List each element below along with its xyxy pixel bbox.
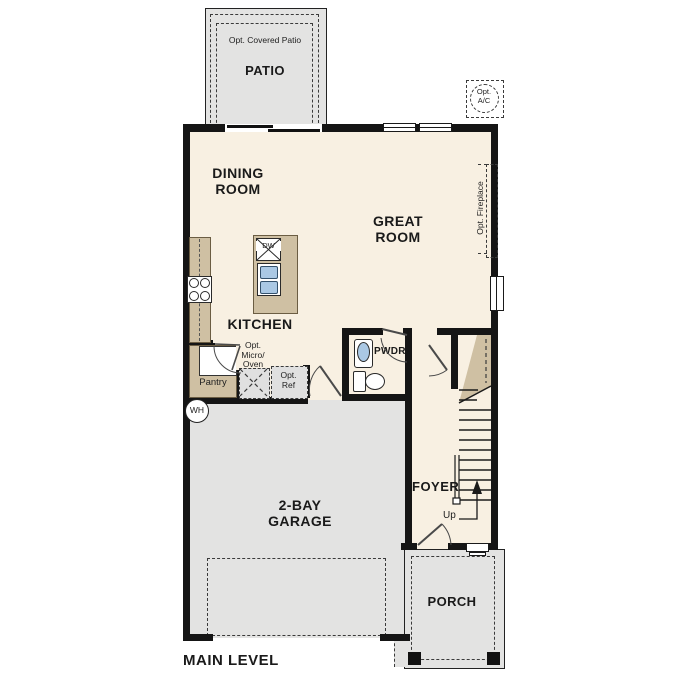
opt-micro-x: [240, 369, 267, 396]
hall-closet-door: [429, 345, 447, 376]
pantry-door: [214, 344, 241, 373]
cooktop-burners: [190, 279, 210, 301]
pwdr-door: [381, 329, 407, 362]
garage-entry-door: [309, 366, 341, 396]
floor-plan: Opt. Covered Patio PATIO Opt. A/C PORCH: [0, 0, 687, 687]
stair-treads: [459, 390, 491, 500]
front-door: [418, 524, 451, 545]
plan-linework: [0, 0, 687, 687]
stair-railing: [453, 455, 460, 504]
dishwasher-x: [257, 239, 280, 260]
